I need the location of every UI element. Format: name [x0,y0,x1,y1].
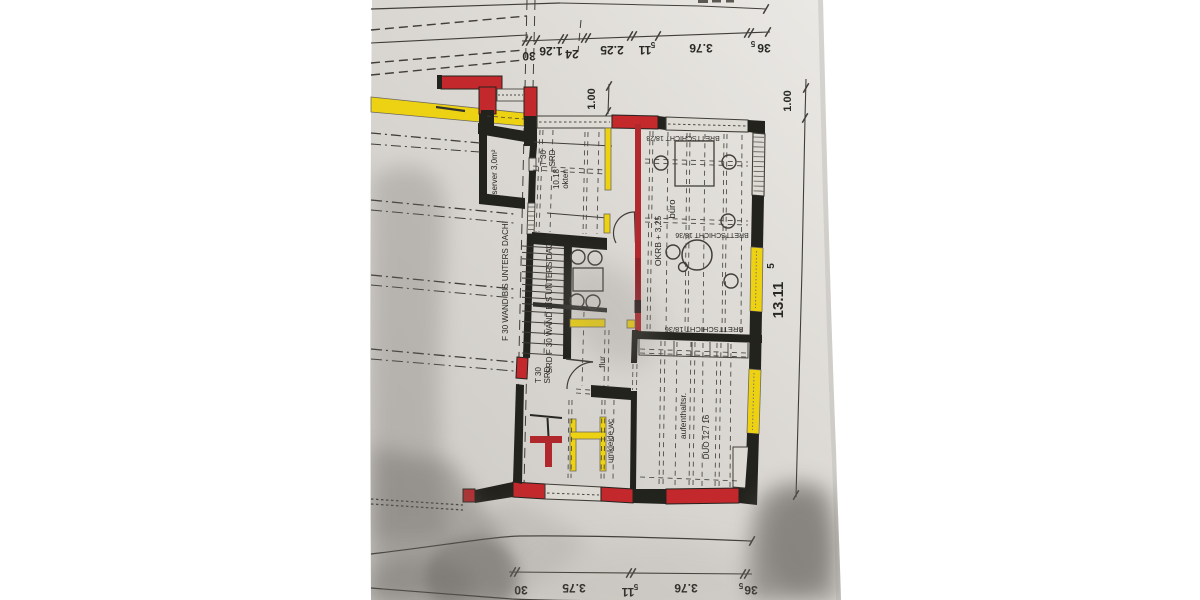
svg-text:24: 24 [565,47,579,61]
svg-text:aufenthaltsr.: aufenthaltsr. [678,393,688,439]
svg-text:1.00: 1.00 [782,90,794,111]
svg-text:30: 30 [522,49,536,63]
svg-text:T 30: T 30 [539,150,548,166]
svg-text:SRD: SRD [543,366,552,383]
svg-text:36: 36 [757,41,771,55]
svg-text:BRETTSCHICHT 18/36: BRETTSCHICHT 18/36 [665,325,744,334]
svg-text:T 30: T 30 [534,367,543,383]
svg-text:5: 5 [766,263,777,269]
svg-text:13.11: 13.11 [770,282,787,319]
svg-text:1.00: 1.00 [586,88,598,109]
svg-text:BRETTSCHICHT 18/28: BRETTSCHICHT 18/28 [646,134,719,141]
svg-text:DUO 12 / 16: DUO 12 / 16 [702,414,711,459]
svg-text:OKRB + 3,25: OKRB + 3,25 [653,216,663,267]
svg-text:3.76: 3.76 [689,41,713,55]
svg-text:F 30 WAND BIS UNTERS DACH!: F 30 WAND BIS UNTERS DACH! [501,221,510,341]
svg-text:5: 5 [650,40,655,49]
svg-text:1.26: 1.26 [539,44,563,58]
svg-text:SRD: SRD [548,149,557,166]
svg-text:2.25: 2.25 [600,43,624,57]
svg-text:10.18: 10.18 [552,168,561,189]
svg-text:okten: okten [561,169,570,189]
svg-text:server 3,0m²: server 3,0m² [490,149,499,194]
svg-text:büro: büro [667,199,678,218]
svg-text:5: 5 [750,39,755,48]
svg-text:11: 11 [638,43,651,57]
